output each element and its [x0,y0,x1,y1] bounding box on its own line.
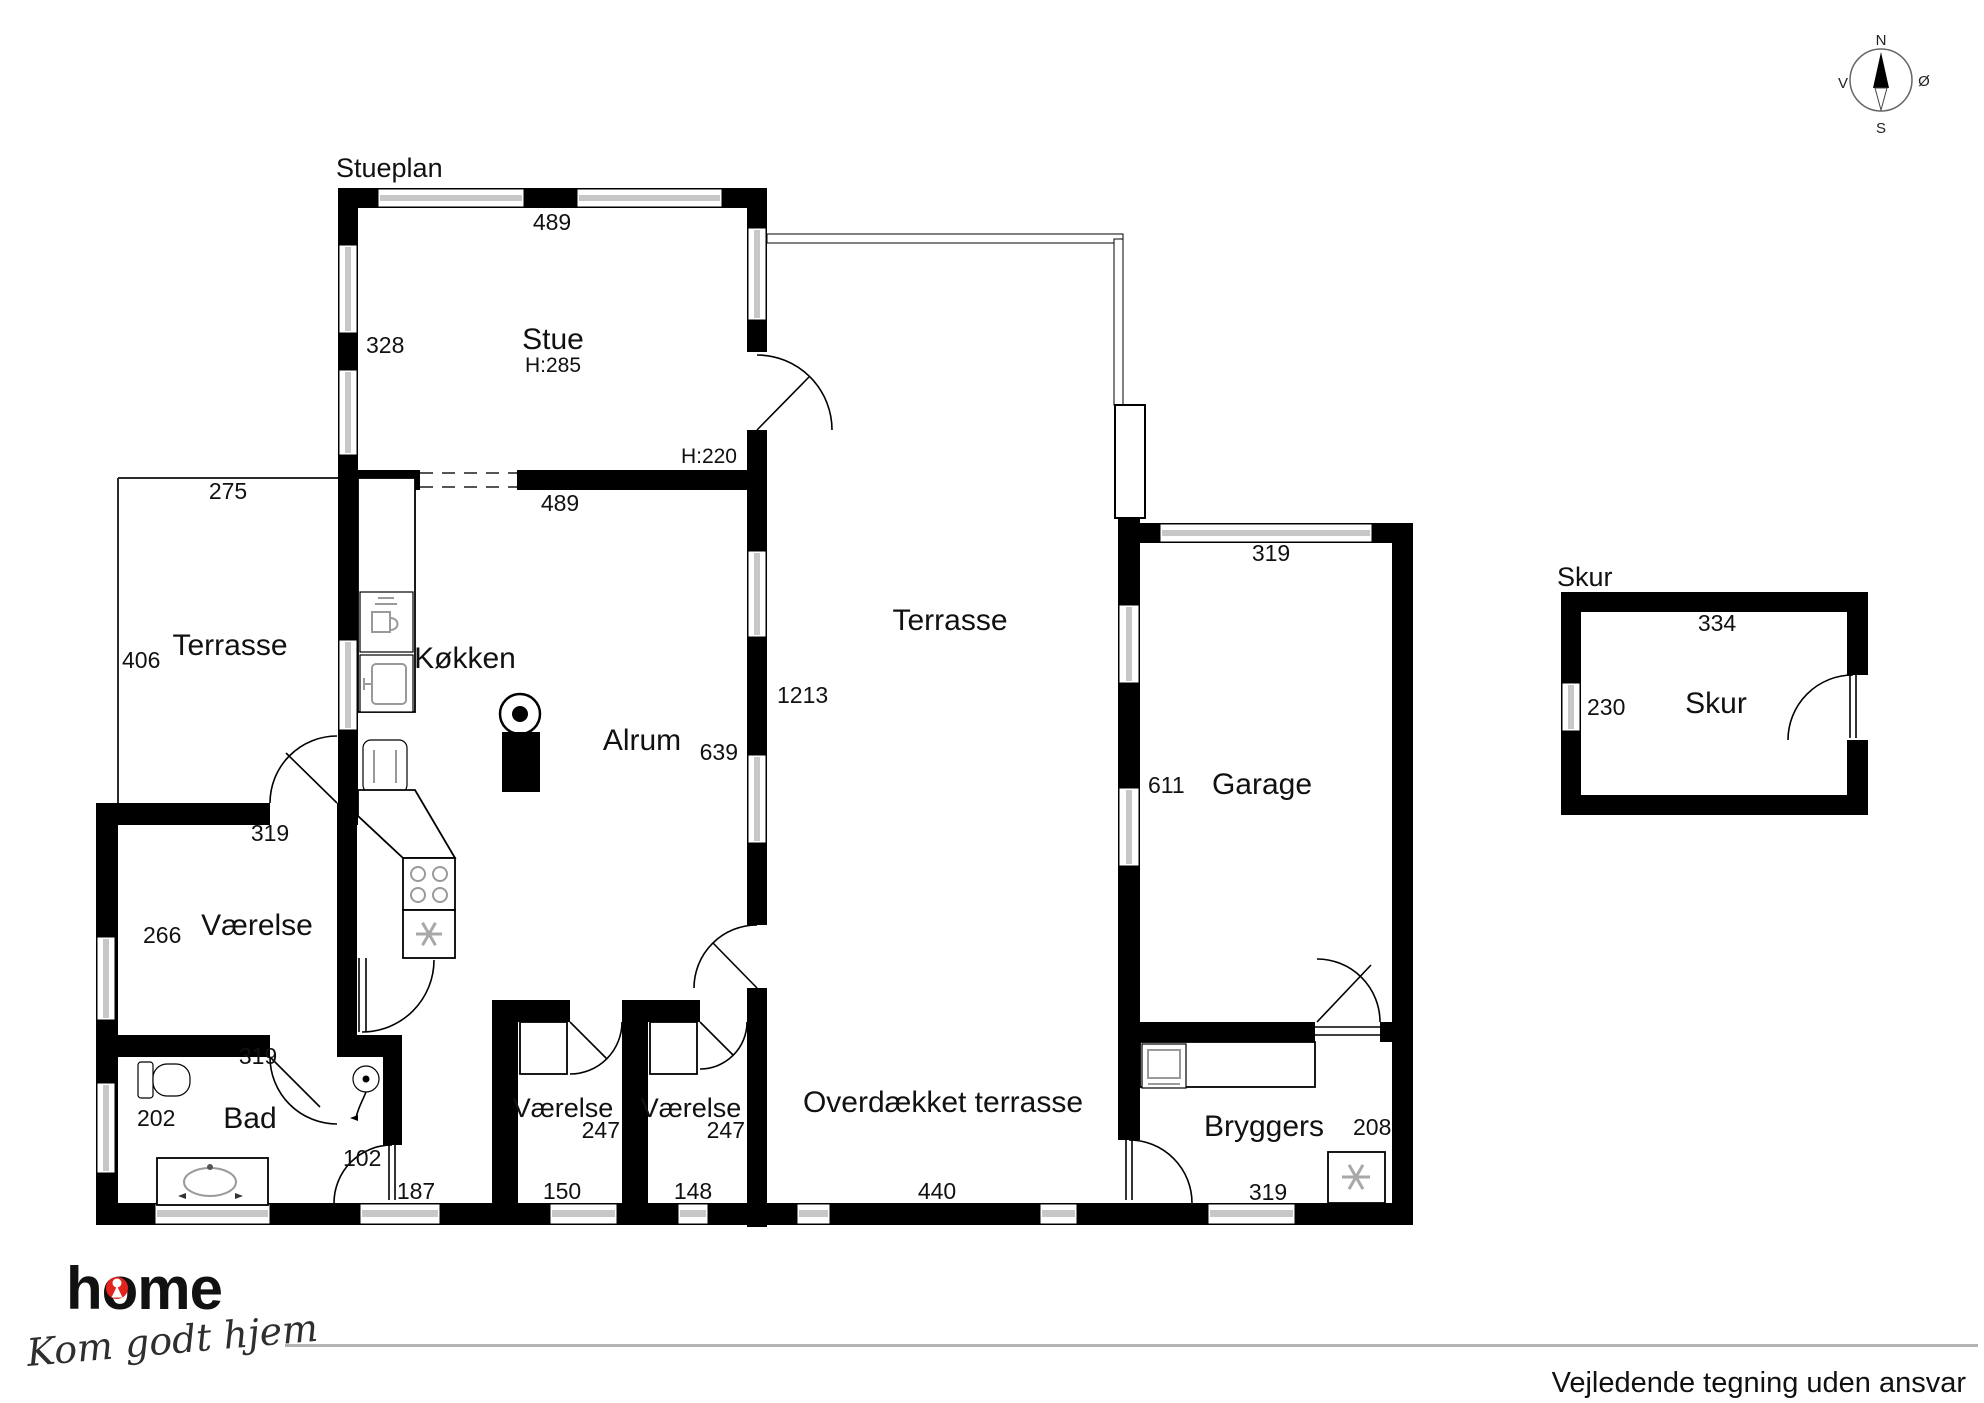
footer-divider [285,1344,1978,1347]
dim-vaerelse-vest-left: 266 [143,922,181,948]
footer: Vejledende tegning uden ansvar [285,1344,1978,1399]
keyhole-icon [106,1277,128,1299]
room-skur: Skur [1685,687,1747,720]
dim-bryggers-bund: 319 [1249,1179,1287,1205]
dim-vaerelse-2-bredde: 247 [707,1117,745,1143]
terrace-boundaries [118,234,1145,803]
dim-gang-bund: 187 [397,1178,435,1204]
compass-north-label: N [1876,32,1887,49]
dim-terrasse-vest-top: 275 [209,478,247,504]
kitchen-sink-icon [360,655,413,712]
dim-alrum-right: 639 [700,739,738,765]
dim-skur-left: 230 [1587,694,1625,720]
wardrobes [520,1022,697,1074]
floorplan-page: N S V Ø Stueplan 489 Stue H:285 328 H:22… [0,0,1984,1403]
wardrobe-icon [650,1022,697,1074]
dim-alrum-top: 489 [541,490,579,516]
dim-vaerelse-1-bredde: 247 [582,1117,620,1143]
dim-bad-left: 202 [137,1105,175,1131]
shower-icon [350,1066,379,1121]
wardrobe-icon [520,1022,567,1074]
compass-south-label: S [1876,120,1886,137]
floorplan-drawing: N S V Ø Stueplan 489 Stue H:285 328 H:22… [0,0,1984,1403]
room-bad: Bad [223,1102,276,1135]
dim-stue-top: 489 [533,209,571,235]
terrace-gate [1115,405,1145,518]
dim-terrasse-midt-right: 1213 [777,682,828,708]
dim-bad-top: 319 [239,1043,277,1069]
dim-stue-left: 328 [366,332,404,358]
vanity-sink-icon [157,1158,268,1205]
compass-west-label: V [1838,75,1848,92]
dim-bryggers-hoejre: 208 [1353,1114,1391,1140]
room-overdaekket: Overdækket terrasse [803,1086,1083,1119]
skur-title: Skur [1557,562,1613,592]
room-garage: Garage [1212,768,1312,801]
dim-vaerelse-vest-top: 319 [251,820,289,846]
room-alrum: Alrum [603,724,681,757]
room-terrasse-midt: Terrasse [892,604,1007,637]
cooktop-icon [403,858,455,910]
compass-east-label: Ø [1918,73,1930,90]
dim-skur-top: 334 [1698,610,1737,636]
room-terrasse-vest: Terrasse [172,629,287,662]
dim-stue-height: H:285 [525,354,581,377]
extractor-fan-icon [403,910,455,958]
washing-machine-icon [1142,1044,1186,1088]
kitchen-counter [358,478,455,958]
dim-vaerelse-2-bund: 148 [674,1178,712,1204]
room-bryggers: Bryggers [1204,1110,1324,1143]
dim-overdaekket-bund: 440 [918,1178,956,1204]
refrigerator-icon [363,740,407,793]
compass-needle-north [1873,52,1889,88]
dim-terrasse-vest-left: 406 [122,647,160,673]
dim-door-height: H:220 [681,445,737,468]
logo-wordmark: home [66,1255,222,1322]
dishwasher-icon [360,592,413,652]
room-koekken: Køkken [414,642,516,675]
compass-rose: N S V Ø [1838,32,1930,137]
plan-title: Stueplan [336,153,443,183]
wood-stove-icon [500,694,540,792]
dim-gang: 102 [343,1145,381,1171]
room-vaerelse-vest: Værelse [201,909,313,942]
room-stue: Stue [522,323,584,356]
heater-fan-icon [1328,1152,1385,1203]
dim-garage-top: 319 [1252,540,1290,566]
dim-vaerelse-1-bund: 150 [543,1178,581,1204]
dim-garage-left: 611 [1148,772,1185,798]
footer-disclaimer: Vejledende tegning uden ansvar [1552,1367,1967,1399]
home-logo: home Kom godt hjem [24,1255,320,1375]
compass-needle-south [1875,88,1887,110]
toilet-icon [138,1062,190,1098]
